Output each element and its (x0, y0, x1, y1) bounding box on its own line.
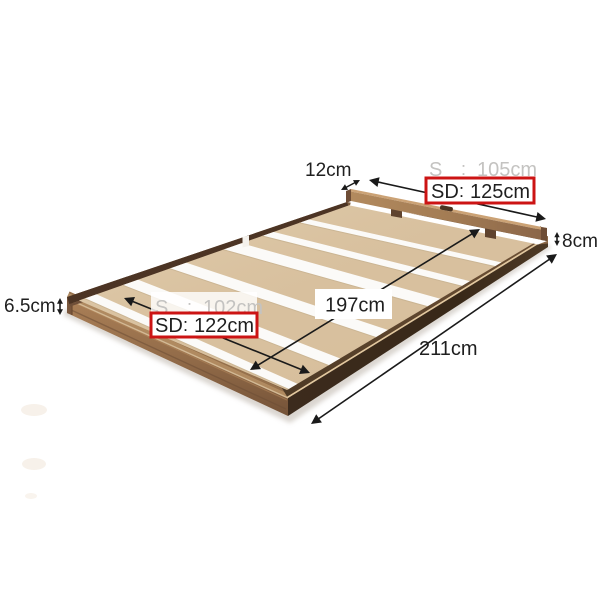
svg-text:211cm: 211cm (419, 338, 478, 360)
svg-text:122cm: 122cm (194, 315, 254, 337)
svg-text:SD: SD (431, 181, 459, 203)
svg-text::: : (459, 181, 464, 201)
svg-text:8cm: 8cm (562, 231, 598, 252)
svg-text:SD: SD (155, 315, 183, 337)
svg-text:197cm: 197cm (325, 295, 385, 317)
svg-text:6.5cm: 6.5cm (4, 296, 56, 317)
svg-text::: : (461, 159, 466, 179)
svg-text::: : (183, 315, 188, 335)
svg-text:125cm: 125cm (470, 181, 530, 203)
svg-text:12cm: 12cm (305, 160, 351, 181)
